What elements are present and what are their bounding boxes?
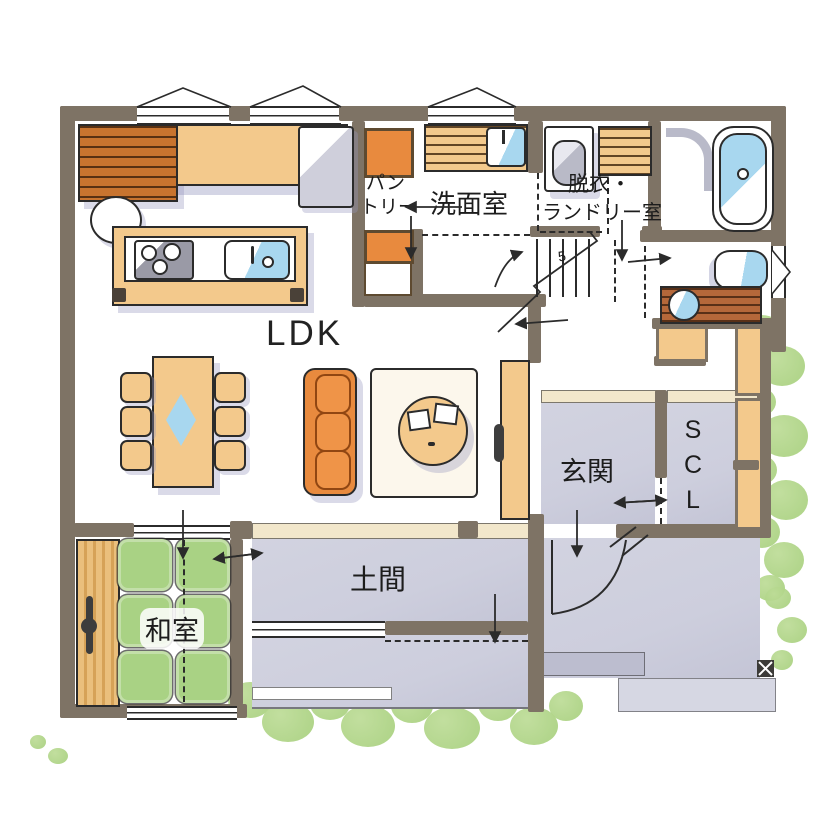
awning-marks [137,86,516,107]
pantry-shelf-mid [364,230,414,264]
scl-shelf-divider [733,460,759,470]
room-label-laundry-line2: ランドリー室 [542,196,662,225]
table-item [407,409,432,432]
porch-step-lower [618,678,776,712]
bush [777,617,807,643]
tatami-mat [118,651,172,703]
bush [764,542,804,578]
wall-washitsu-post [230,521,252,539]
opening-hall-stairsdoor [614,240,616,302]
room-label-genkan: 玄関 [560,450,614,489]
sofa-cushion [315,450,351,490]
opening-genkan-scl [660,478,662,524]
room-label-washroom: 洗面室 [430,184,508,221]
washbasin-faucet [502,130,505,144]
wall-top-mid [339,106,430,121]
washitsu-north-sliding [134,525,230,540]
washitsu-south-window [127,706,237,720]
toilet-window [771,246,786,298]
wall-washitsu-right [230,539,243,705]
pantry-bay [364,262,412,296]
tatami-mat [118,539,172,591]
cooktop-burner [141,245,157,261]
sofa-cushion [315,412,351,452]
floor-plan: LDK パン トリー 洗面室 脱衣・ ランドリー室 玄関 SCL 和室 土間 5 [0,0,840,840]
dining-chair [120,440,152,471]
kitchen-window-1 [137,106,231,125]
shower-screen [666,128,713,191]
bathtub-drain [737,168,749,180]
bush [549,691,583,721]
wall-doma-bottom [385,621,528,635]
wall-left [60,106,75,718]
bush [765,587,791,609]
opening-doma-south [385,640,528,642]
island-post-left [112,288,126,302]
dining-chair [214,440,246,471]
porch-pillar [757,660,774,677]
doma-step [252,687,392,700]
opening-washroom-hall [422,234,530,236]
wall-top-right [514,106,786,121]
opening-washroom-laundry [537,173,539,231]
wall-bath-bottom [640,230,786,242]
bush [771,650,793,670]
cooktop-burner [152,259,168,275]
wall-genkan-scl [655,390,667,478]
ldk-doma-sill [252,523,530,539]
room-label-ldk: LDK [266,314,343,354]
bush [48,748,68,764]
room-label-pantry-line1: パン [366,168,405,195]
kitchen-sink [224,240,290,280]
kitchen-window-2 [250,106,341,125]
dining-chair [120,406,152,437]
wall-laundry-stub [528,121,543,173]
bush [424,707,480,749]
sofa-cushion [315,374,351,414]
cooktop-burner [163,243,181,261]
room-label-doma: 土間 [350,558,406,598]
wall-ldk-genkan-lower [528,514,544,712]
refrigerator [298,126,354,208]
porch-step-inner [543,652,645,676]
bush [341,705,395,747]
door-handle [494,424,504,462]
room-label-washitsu: 和室 [140,608,204,649]
opening-laundry-hall [540,231,602,233]
room-label-pantry-line2: トリー [360,192,417,219]
dining-chair [214,372,246,403]
dining-chair [120,372,152,403]
genkan-step-strip [541,390,657,403]
kitchen-corner-cabinet [78,124,178,202]
wall-washitsu-top [74,523,134,537]
washbasin [486,127,526,167]
opening-toilet-door [644,246,646,318]
toilet-vanity-bowl [668,289,700,321]
corridor-closet [656,326,708,362]
wall-sill-post [458,521,478,538]
toilet [714,250,768,290]
sink-faucet [251,246,254,264]
corridor-closet-2 [735,326,763,396]
dining-chair [214,406,246,437]
staircase [536,239,598,297]
table-dot [428,442,435,446]
room-label-laundry-line1: 脱衣・ [568,168,631,198]
wall-top-mullion [229,106,252,121]
room-label-scl: SCL [678,416,707,521]
wall-ldk-genkan-upper [528,303,541,363]
doma-south-window [252,621,385,638]
ldk-genkan-door [500,360,530,520]
closet-door-knob [81,618,97,634]
washroom-window [428,106,516,125]
table-item [433,403,459,426]
bush [30,735,46,749]
sink-drain [262,256,274,268]
island-post-right [290,288,304,302]
